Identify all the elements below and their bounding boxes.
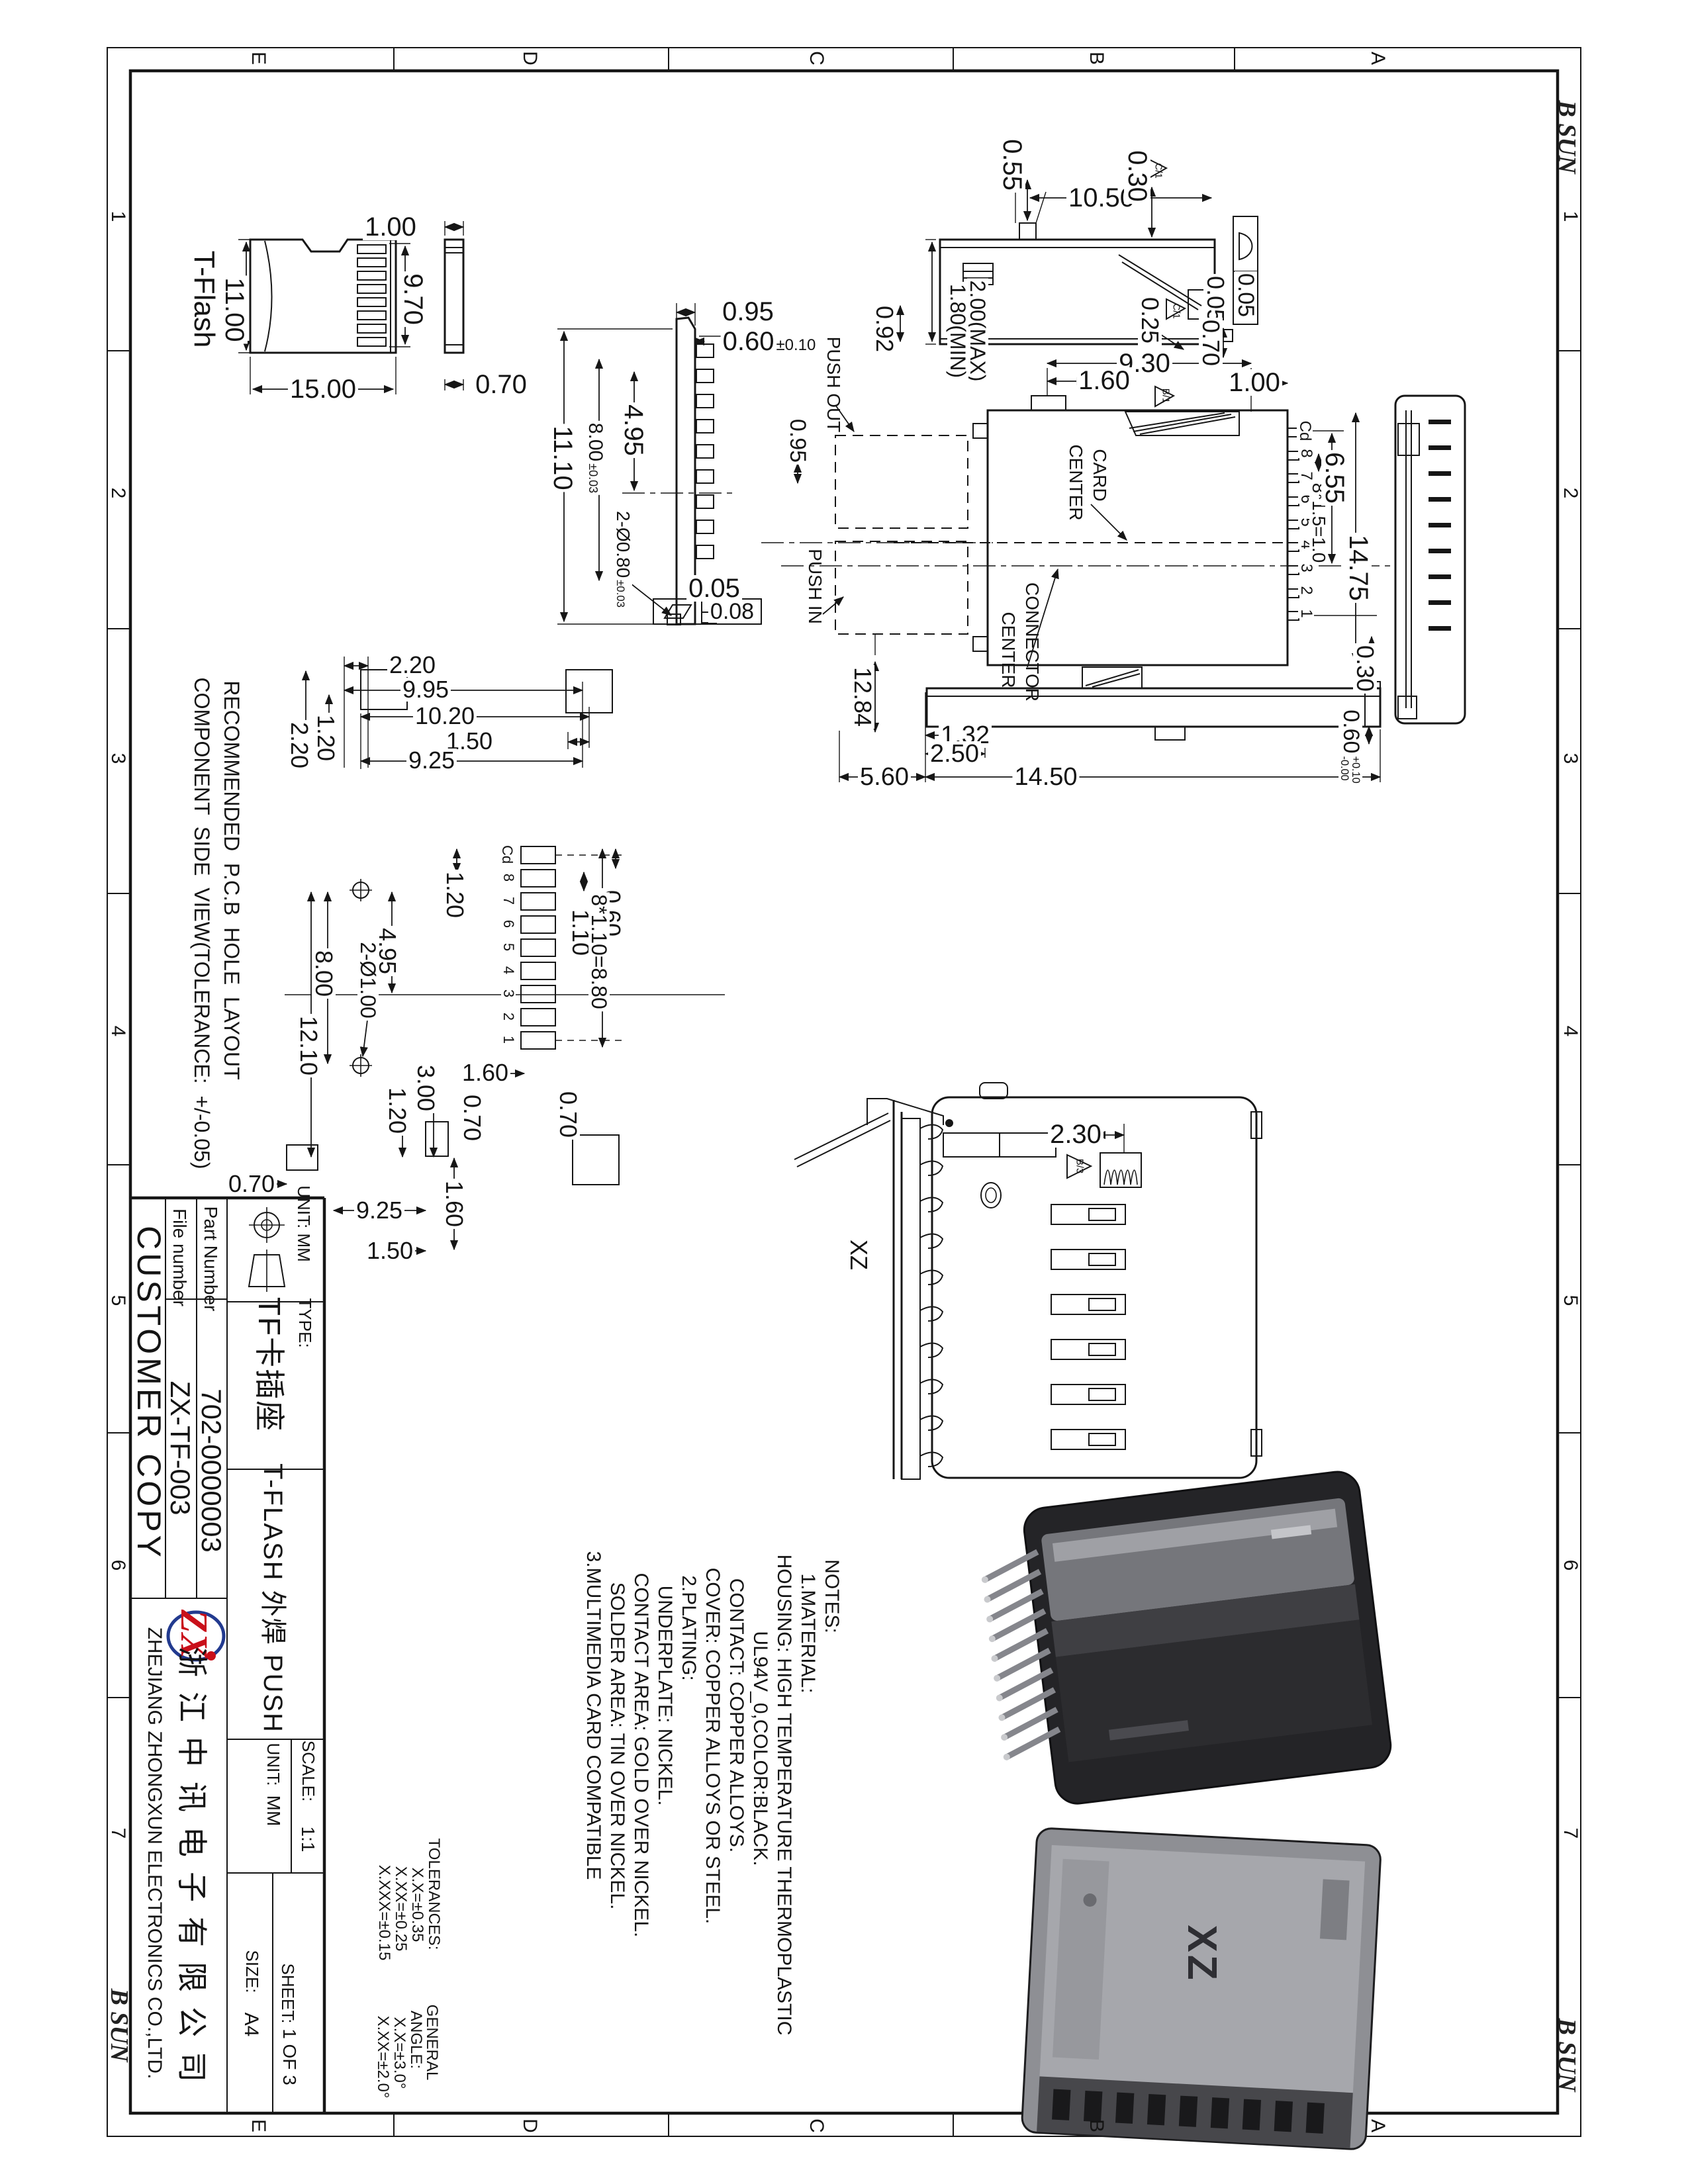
- pcb-pad-2: 2: [501, 1012, 516, 1021]
- dim-top-0-30: 0.30: [1124, 148, 1150, 204]
- dim-front-14-50: 14.50: [1012, 764, 1079, 790]
- label-conn-center-2: CENTER: [999, 612, 1017, 688]
- dim-side-2-d0-80: 2-Ø0.80±0.03: [614, 509, 632, 610]
- dim-pcb-2-20b: 2.20: [287, 720, 311, 770]
- note-2b: CONTACT AREA: GOLD OVER NICKEL.: [631, 1573, 651, 1938]
- zone-num-right-1: 1: [1560, 211, 1580, 222]
- tb-unit2-value: MM: [264, 1796, 283, 1827]
- zone-num-left-3: 3: [108, 753, 128, 764]
- fcf-flatness-value: 0.08: [708, 600, 756, 623]
- note-1b: UL94V_0,COLOR:BLACK.: [750, 1631, 770, 1866]
- zone-num-right-6: 6: [1560, 1560, 1580, 1571]
- pinlbl-2: 2: [1298, 585, 1314, 595]
- dim-side-0-60: 0.60±0.10: [721, 328, 818, 355]
- pinlbl-7: 7: [1298, 471, 1314, 480]
- label-conn-center-1: CONNECTOR: [1023, 582, 1041, 702]
- zone-num-right-2: 2: [1560, 488, 1580, 499]
- dim-card-11-00: 11.00: [221, 275, 248, 343]
- dim-pcb-0-70c: 0.70: [460, 1093, 484, 1143]
- dim-pcb-1-20d: 1.20: [385, 1085, 409, 1136]
- flag-b3: B/3: [1075, 1159, 1085, 1174]
- tb-part-number-label: Part Number: [201, 1206, 220, 1312]
- dim-top-2-00-max: 2.00(MAX): [967, 279, 988, 384]
- tb-type-value: TF卡插座: [254, 1297, 285, 1432]
- note-1a: HOUSING: HIGH TEMPERATURE THERMOPLASTIC: [774, 1555, 794, 2036]
- tb-type-label: TYPE:: [297, 1298, 314, 1347]
- label-card-center-1: CARD: [1090, 449, 1109, 501]
- note-2c: SOLDER AREA: TIN OVER NICKEL.: [607, 1582, 627, 1910]
- tb-title: T-FLASH 外焊 PUSH: [259, 1463, 286, 1733]
- dim-top-0-55: 0.55: [999, 137, 1025, 193]
- zone-num-right-3: 3: [1560, 753, 1580, 764]
- dim-top-0-92: 0.92: [872, 304, 896, 354]
- annotation-layer: EDCBAEDCBA12345671234567B SUNB SUNB SUNT…: [0, 0, 1688, 2184]
- dim-card-1-00: 1.00: [363, 214, 418, 240]
- dim-pcb-1-20a: 1.20: [314, 713, 338, 763]
- zone-num-right-7: 7: [1560, 1828, 1580, 1839]
- zone-num-right-5: 5: [1560, 1295, 1580, 1306]
- tb-file-number-label: File number: [170, 1208, 189, 1306]
- tol-gen-2: ANGLE:: [408, 2011, 424, 2069]
- label-push-in: PUSH IN: [806, 549, 824, 624]
- dim-main-6-55: 6.55: [1321, 450, 1348, 506]
- note-2a: UNDERPLATE: NICKEL.: [655, 1586, 675, 1806]
- dim-pcb-pitch: 8*1.10=8.80: [588, 892, 610, 1011]
- dim-top-1-80-min: 1.80(MIN): [947, 282, 968, 380]
- dim-side-8-00: 8.00±0.03: [585, 421, 605, 495]
- dim-pcb-9-95: 9.95: [400, 678, 451, 702]
- tb-unit2-label: UNIT:: [265, 1743, 282, 1786]
- zone-num-left-7: 7: [108, 1828, 128, 1839]
- dim-main-14-75: 14.75: [1345, 533, 1372, 603]
- dim-top-0-05: 0.05: [1203, 274, 1227, 324]
- dim-front-5-60: 5.60: [858, 764, 911, 790]
- zone-letter-bottom-d: D: [520, 2118, 539, 2133]
- tb-sheet-value: 1 OF 3: [280, 2028, 299, 2085]
- dim-right-0-60: 0.60+0.10-0.00: [1338, 707, 1362, 785]
- label-card-center-2: CENTER: [1066, 444, 1085, 520]
- stamp-bsun-bottom-left: B SUN: [107, 1989, 132, 2062]
- tb-scale-label: SCALE:: [300, 1741, 317, 1802]
- stamp-bsun-bottom-right: B SUN: [1554, 2019, 1579, 2092]
- pinlbl-1: 1: [1298, 608, 1314, 618]
- dim-pcb-3-00: 3.00: [414, 1063, 438, 1113]
- page: { "colors":{"ink":"#161616","logo_red":"…: [0, 0, 1688, 2184]
- flag-b1: B/1: [1161, 388, 1171, 404]
- dim-pcb-0-70a: 0.70: [556, 1089, 580, 1140]
- zone-num-left-5: 5: [108, 1295, 128, 1306]
- dim-pcb-2-20: 2.20: [387, 653, 438, 677]
- fcf-profile-value: 0.05: [1235, 271, 1257, 319]
- tol-title: TOLERANCES:: [426, 1839, 442, 1950]
- dim-pcb-1-20c: 1.20: [443, 870, 467, 920]
- pcb-pad-3: 3: [501, 989, 516, 998]
- tb-customer-copy: CUSTOMER COPY: [132, 1226, 165, 1561]
- pcb-pad-8: 8: [501, 873, 516, 882]
- zone-num-left-2: 2: [108, 488, 128, 499]
- dim-main-1-00: 1.00: [1227, 369, 1282, 396]
- photo-marking-xz: XZ: [1181, 1925, 1222, 1982]
- dim-bottom-2-30: 2.30: [1048, 1121, 1103, 1148]
- note-2: 2.PLATING:: [679, 1575, 698, 1681]
- tb-file-number-value: ZX-TF-003: [166, 1381, 194, 1515]
- pcb-caption-line2: COMPONENT SIDE VIEW(TOLERANCE: +/-0.05): [191, 678, 212, 1169]
- drawing-sheet: EDCBAEDCBA12345671234567B SUNB SUNB SUNT…: [0, 0, 1688, 2184]
- pcb-pad-1: 1: [501, 1035, 516, 1044]
- dim-travel-12-84: 12.84: [851, 665, 874, 729]
- tol-gen-3: X.X=±3.0°: [391, 2017, 407, 2089]
- dim-pcb-9-25: 9.25: [406, 749, 457, 772]
- dim-pcb-8-00: 8.00: [312, 948, 336, 999]
- dim-side-11-10: 11.10: [549, 424, 576, 492]
- zone-letter-bottom-b: B: [1086, 2119, 1106, 2132]
- tb-unit-label: UNIT: MM: [295, 1185, 312, 1262]
- pinlbl-cd: Cd: [1297, 420, 1313, 442]
- tb-size-value: A4: [241, 2013, 261, 2037]
- zone-num-left-4: 4: [108, 1026, 128, 1037]
- dim-card-9-70: 9.70: [400, 271, 426, 327]
- pcb-pad-cd: Cd: [500, 844, 514, 864]
- dim-side-4-95: 4.95: [620, 402, 647, 458]
- flag-c1-b: C/1: [1172, 303, 1182, 318]
- dim-pcb-12-10: 12.10: [297, 1014, 320, 1077]
- dim-pcb-0-70b: 0.70: [226, 1172, 277, 1196]
- dim-pcb-1-60b: 1.60: [442, 1179, 466, 1229]
- tb-sheet-label: SHEET:: [279, 1963, 297, 2023]
- note-title: NOTES:: [821, 1559, 841, 1633]
- dim-card-0-70: 0.70: [473, 371, 529, 398]
- dim-side-0-05: 0.05: [686, 575, 742, 602]
- dim-pcb-2-d1-00: 2-Ø1.00: [357, 940, 379, 1021]
- zone-letter-top-e: E: [248, 52, 268, 65]
- note-1c: CONTACT: COPPER ALLOYS.: [726, 1578, 746, 1853]
- note-1d: COVER: COPPER ALLOYS OR STEEL.: [702, 1568, 722, 1925]
- zone-letter-bottom-a: A: [1368, 2119, 1387, 2132]
- zone-num-right-4: 4: [1560, 1026, 1580, 1037]
- tol-3: X.XXX=±0.15: [376, 1865, 392, 1961]
- label-push-out: PUSH OUT: [824, 337, 843, 433]
- tol-gen-4: X.XX=±2.0°: [375, 2016, 391, 2099]
- pinlbl-8: 8: [1298, 448, 1314, 458]
- dim-main-0-30: 0.30: [1353, 643, 1377, 694]
- tol-2: X.XX=±0.25: [393, 1866, 408, 1952]
- dim-front-2-50: 2.50: [928, 741, 981, 766]
- pcb-pad-6: 6: [501, 919, 516, 929]
- dim-pcb-1-50b: 1.50: [365, 1239, 415, 1263]
- zone-num-left-6: 6: [108, 1560, 128, 1571]
- card-view-label: T-Flash: [189, 251, 218, 348]
- zone-letter-top-d: D: [520, 51, 539, 66]
- flag-c1-a: C/1: [1154, 163, 1164, 178]
- zone-num-left-1: 1: [108, 211, 128, 222]
- zone-letter-bottom-e: E: [248, 2119, 268, 2132]
- pcb-caption-line1: RECOMMENDED P.C.B HOLE LAYOUT: [221, 680, 242, 1079]
- note-1: 1.MATERIAL:: [798, 1573, 818, 1693]
- dim-main-1-60: 1.60: [1076, 367, 1132, 394]
- dim-side-0-95: 0.95: [720, 298, 776, 325]
- zone-letter-top-c: C: [806, 51, 826, 66]
- dim-top-0-25: 0.25: [1138, 295, 1162, 345]
- tb-company-cn: 浙江中讯电子有限公司: [177, 1647, 207, 2097]
- dim-pcb-9-25b: 9.25: [354, 1199, 404, 1222]
- label-iso-xz: XZ: [847, 1240, 870, 1270]
- pcb-pad-5: 5: [501, 942, 516, 952]
- tb-scale-value: 1:1: [299, 1827, 317, 1852]
- dim-pcb-1-60a: 1.60: [460, 1061, 510, 1085]
- tol-1: X.X=±0.35: [409, 1868, 425, 1942]
- dim-top-0-70: 0.70: [1199, 318, 1223, 368]
- dim-card-15-00: 15.00: [288, 376, 358, 402]
- tol-gen-1: GENERAL: [424, 2005, 440, 2081]
- zone-letter-top-b: B: [1086, 52, 1106, 65]
- pcb-pad-4: 4: [501, 966, 516, 975]
- dim-pcb-10-20: 10.20: [413, 704, 477, 728]
- tb-company-en: ZHEJIANG ZHONGXUN ELECTRONICS CO.,LTD.: [144, 1627, 164, 2079]
- dim-travel-0-95: 0.95: [786, 417, 809, 465]
- tb-part-number-value: 702-0000003: [197, 1388, 225, 1553]
- zone-letter-bottom-c: C: [806, 2118, 826, 2133]
- note-3: 3.MULTIMEDIA CARD COMPATIBLE: [583, 1551, 603, 1880]
- stamp-bsun-top-right: B SUN: [1554, 101, 1579, 174]
- pcb-pad-7: 7: [501, 896, 516, 905]
- tb-size-label: SIZE:: [244, 1950, 261, 1993]
- zone-letter-top-a: A: [1368, 52, 1387, 65]
